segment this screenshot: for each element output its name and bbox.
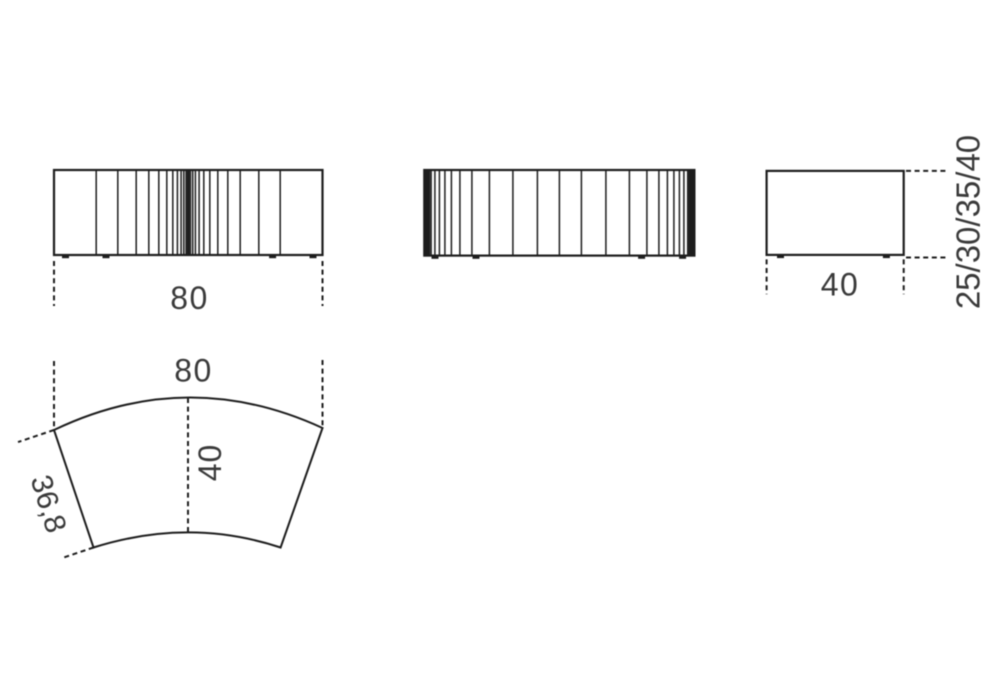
svg-text:40: 40 [192, 444, 228, 482]
svg-text:80: 80 [174, 353, 213, 389]
svg-text:40: 40 [821, 267, 860, 303]
svg-text:25/30/35/40: 25/30/35/40 [950, 135, 987, 309]
svg-text:36,8: 36,8 [24, 471, 73, 536]
svg-text:80: 80 [170, 280, 209, 316]
